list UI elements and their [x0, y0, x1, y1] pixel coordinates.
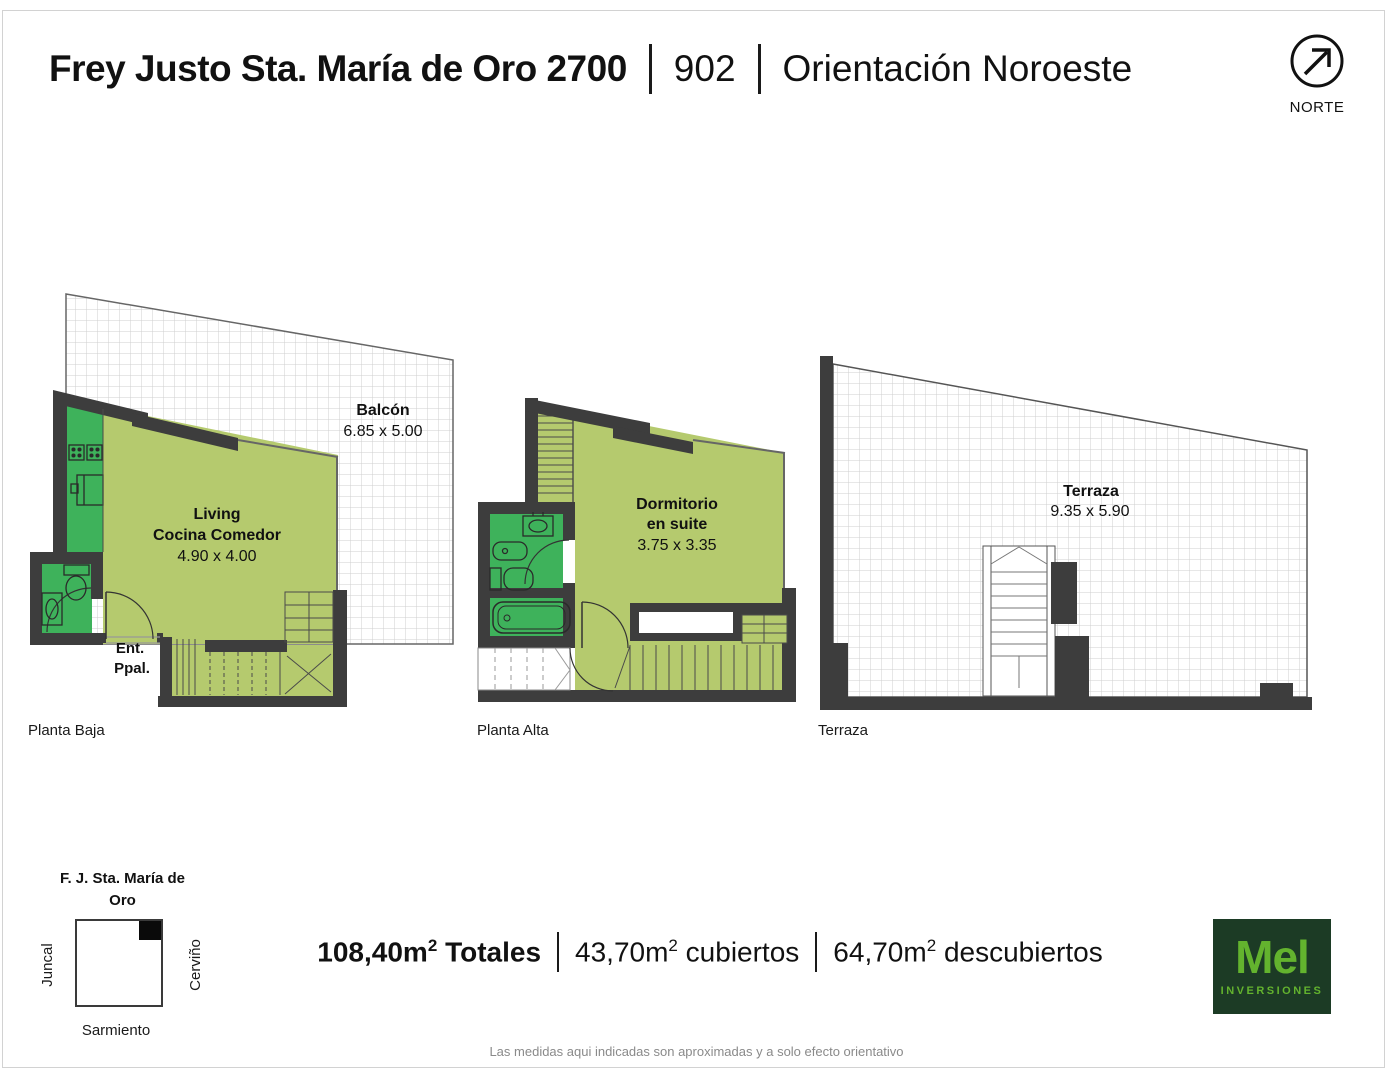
- caption-terraza: Terraza: [818, 722, 868, 739]
- map-block: [75, 919, 163, 1007]
- street-cervino: Cerviño: [187, 910, 205, 1020]
- living-dims: 4.90 x 4.00: [177, 548, 256, 565]
- map-title: F. J. Sta. María de Oro: [30, 868, 215, 912]
- disclaimer-text: Las medidas aqui indicadas son aproximad…: [0, 1044, 1393, 1059]
- bedroom-label-2: en suite: [647, 516, 708, 533]
- terraza-plan: Terraza 9.35 x 5.90: [815, 350, 1375, 712]
- balcony-dims: 6.85 x 5.00: [343, 423, 422, 440]
- north-label: NORTE: [1282, 99, 1352, 116]
- totals-divider: [557, 932, 559, 972]
- total-area: 108,40m2 Totales: [317, 936, 541, 968]
- living-label-2: Cocina Comedor: [153, 527, 281, 544]
- caption-planta-alta: Planta Alta: [477, 722, 549, 739]
- balcony-label: Balcón: [356, 402, 409, 419]
- header: Frey Justo Sta. María de Oro 2700 902 Or…: [49, 38, 1132, 100]
- totals-divider: [815, 932, 817, 972]
- covered-area: 43,70m2 cubiertos: [575, 936, 799, 968]
- area-totals: 108,40m2 Totales 43,70m2 cubiertos 64,70…: [300, 932, 1120, 972]
- living-label-1: Living: [193, 506, 240, 523]
- map-lot-marker: [139, 921, 161, 940]
- north-arrow-icon: [1286, 30, 1348, 92]
- brand-logo: Mel INVERSIONES: [1213, 919, 1331, 1014]
- street-sarmiento: Sarmiento: [61, 1022, 171, 1040]
- entrance-label-1: Ent.: [116, 640, 144, 657]
- floorplan-page: Frey Justo Sta. María de Oro 2700 902 Or…: [0, 0, 1393, 1080]
- page-title: Frey Justo Sta. María de Oro 2700: [49, 48, 627, 90]
- header-divider: [649, 44, 652, 94]
- street-juncal: Juncal: [39, 910, 57, 1020]
- uncovered-area: 64,70m2 descubiertos: [833, 936, 1102, 968]
- bathroom-area: [41, 563, 92, 634]
- bedroom-label-1: Dormitorio: [636, 496, 718, 513]
- terrace-label: Terraza: [1063, 483, 1119, 500]
- map-title-line2: Oro: [30, 890, 215, 912]
- caption-planta-baja: Planta Baja: [28, 722, 105, 739]
- entrance-label-2: Ppal.: [114, 660, 150, 677]
- brand-subtitle: INVERSIONES: [1221, 985, 1324, 997]
- header-divider: [758, 44, 761, 94]
- stair-steps: [742, 615, 787, 643]
- stair-core: [983, 546, 1055, 696]
- void-opening: [639, 612, 733, 633]
- planta-alta-plan: Dormitorio en suite 3.75 x 3.35: [465, 390, 800, 720]
- unit-number: 902: [674, 48, 736, 90]
- map-title-line1: F. J. Sta. María de: [30, 868, 215, 890]
- planta-baja-plan: Balcón 6.85 x 5.00: [20, 287, 460, 707]
- north-indicator: NORTE: [1282, 30, 1352, 116]
- lower-stair-hatch: [478, 648, 570, 690]
- brand-name: Mel: [1235, 936, 1309, 980]
- terrace-dims: 9.35 x 5.90: [1050, 503, 1129, 520]
- orientation-label: Orientación Noroeste: [783, 48, 1133, 90]
- bedroom-dims: 3.75 x 3.35: [637, 537, 716, 554]
